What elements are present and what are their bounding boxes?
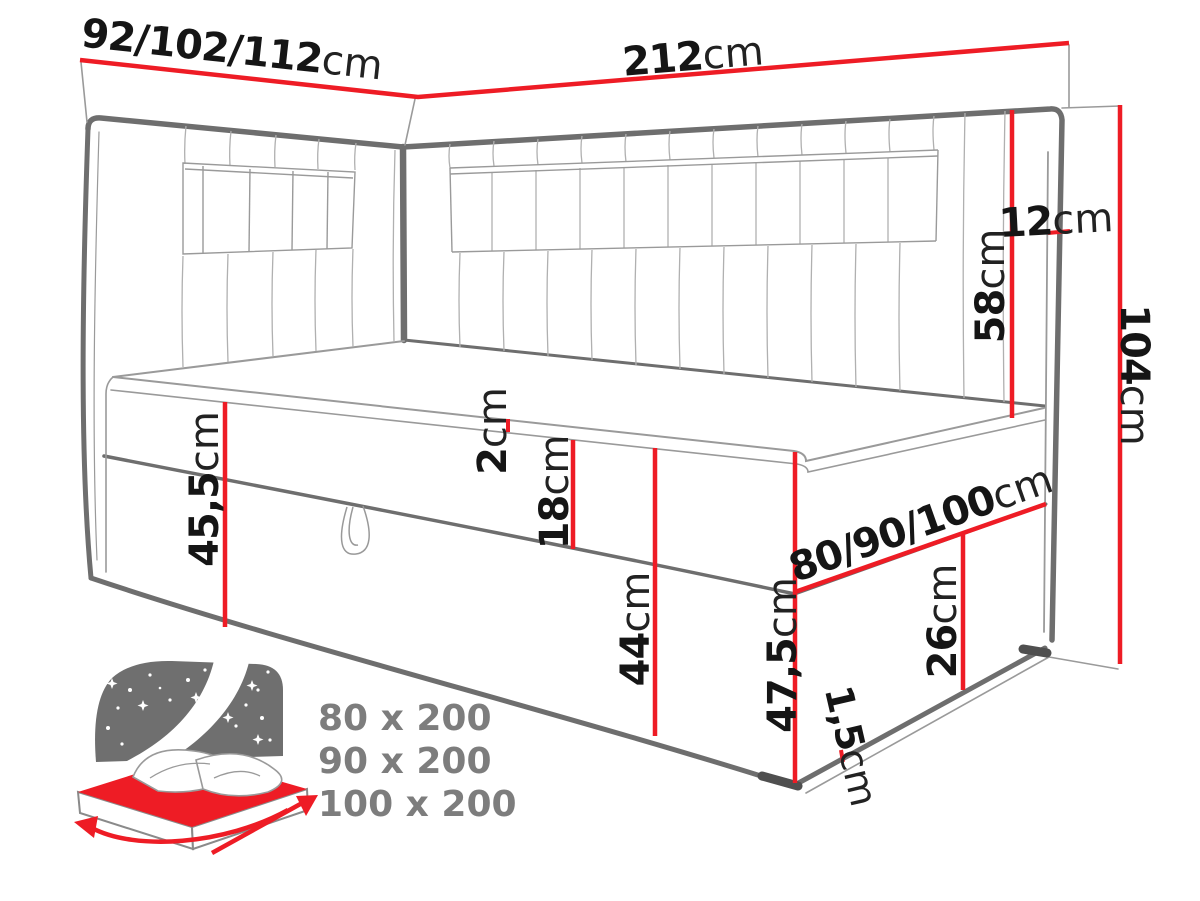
- dim-left-height: 45,5cm: [185, 411, 225, 567]
- bed-dimension-diagram: 92/102/112cm 212cm 12cm 58cm 104cm 2cm 1…: [0, 0, 1200, 901]
- dim-total-height: 104cm: [1114, 304, 1154, 445]
- dim-total-length: 212cm: [621, 31, 765, 82]
- dim-side-base-height: 26cm: [923, 564, 963, 679]
- size-option-90x200: 90 x 200: [318, 744, 492, 780]
- drawer-handle: [341, 506, 369, 554]
- dim-topper-height: 2cm: [473, 387, 513, 475]
- dim-headboard-height: 58cm: [971, 229, 1011, 344]
- bed-size-icon: [74, 656, 318, 853]
- dim-corner-height: 47,5cm: [763, 577, 803, 733]
- bed-line-drawing: [0, 0, 1200, 901]
- dim-base-height: 44cm: [616, 572, 656, 687]
- dim-mattress-height: 18cm: [535, 435, 575, 550]
- size-option-100x200: 100 x 200: [318, 787, 517, 823]
- size-option-80x200: 80 x 200: [318, 701, 492, 737]
- dim-headboard-thickness: 12cm: [998, 198, 1115, 244]
